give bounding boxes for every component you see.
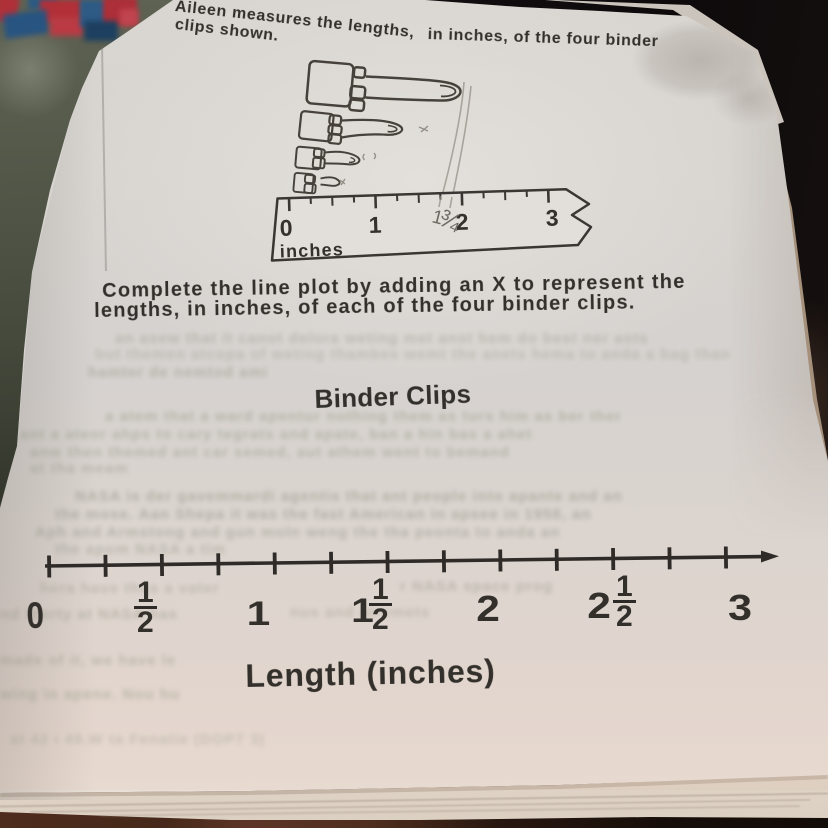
svg-text:0: 0 xyxy=(279,215,293,241)
svg-text:inches: inches xyxy=(279,239,344,261)
svg-text:1: 1 xyxy=(368,212,382,238)
svg-text:3: 3 xyxy=(545,205,559,231)
